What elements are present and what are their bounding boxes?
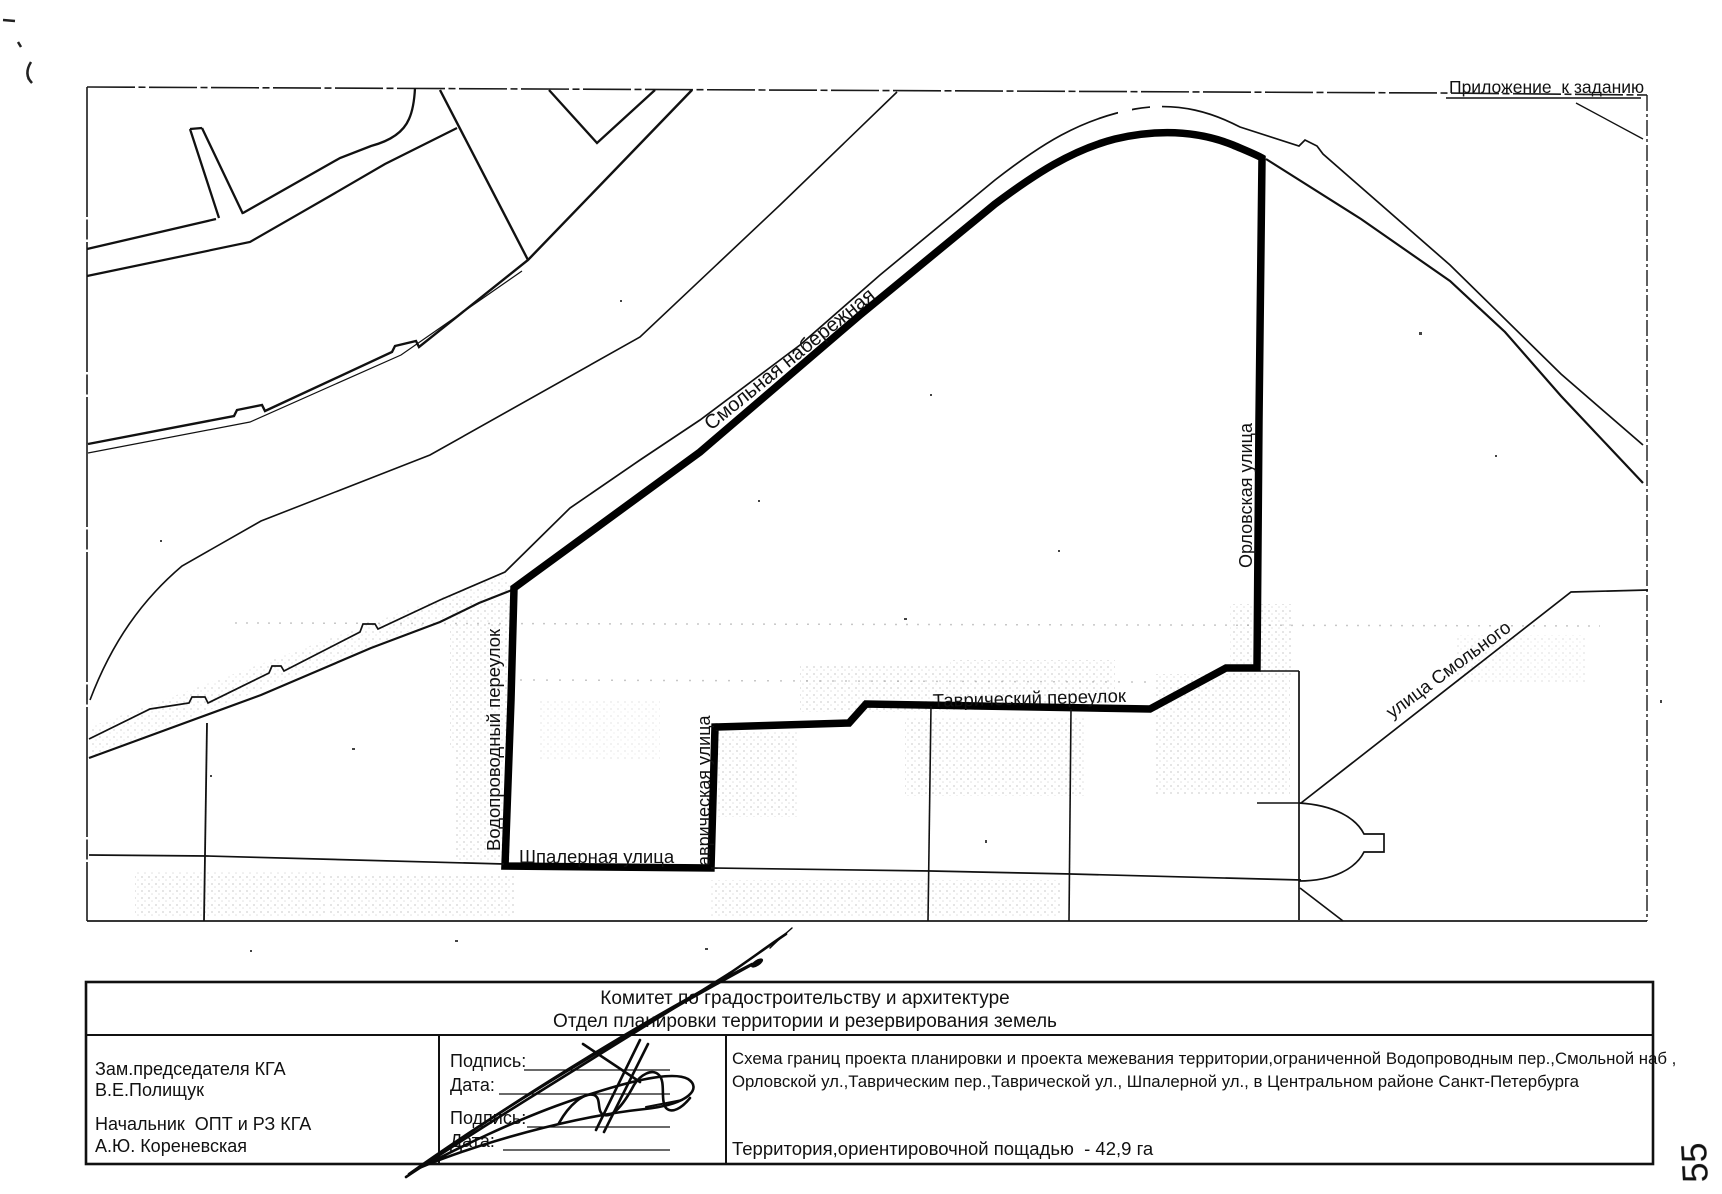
svg-text:В.Е.Полищук: В.Е.Полищук <box>95 1080 204 1100</box>
svg-text:А.Ю. Кореневская: А.Ю. Кореневская <box>95 1136 247 1156</box>
svg-text:Орловская улица: Орловская улица <box>1236 422 1256 568</box>
svg-text:Начальник ОПТ и РЗ КГА: Начальник ОПТ и РЗ КГА <box>95 1114 311 1134</box>
svg-text:55: 55 <box>1673 1142 1716 1184</box>
svg-text:Отдел планировки территории и: Отдел планировки территории и резервиров… <box>553 1011 1057 1032</box>
svg-text:Подпись:: Подпись: <box>450 1051 526 1071</box>
svg-text:Зам.председателя КГА: Зам.председателя КГА <box>95 1059 286 1079</box>
svg-text:Орловской ул.,Таврическим пер.: Орловской ул.,Таврическим пер.,Таврическ… <box>732 1072 1580 1091</box>
svg-text:Водопроводный переулок: Водопроводный переулок <box>483 628 504 851</box>
svg-text:Комитет по градостроительству: Комитет по градостроительству и архитект… <box>600 988 1009 1009</box>
svg-text:Схема границ проекта планировк: Схема границ проекта планировки и проект… <box>732 1049 1676 1068</box>
svg-text:аврическая улица: аврическая улица <box>694 714 714 866</box>
svg-text:Шпалерная улица: Шпалерная улица <box>519 846 675 867</box>
svg-text:Дата:: Дата: <box>450 1075 495 1095</box>
svg-text:Территория,ориентировочной пощ: Территория,ориентировочной пощадью - 42,… <box>732 1138 1154 1159</box>
